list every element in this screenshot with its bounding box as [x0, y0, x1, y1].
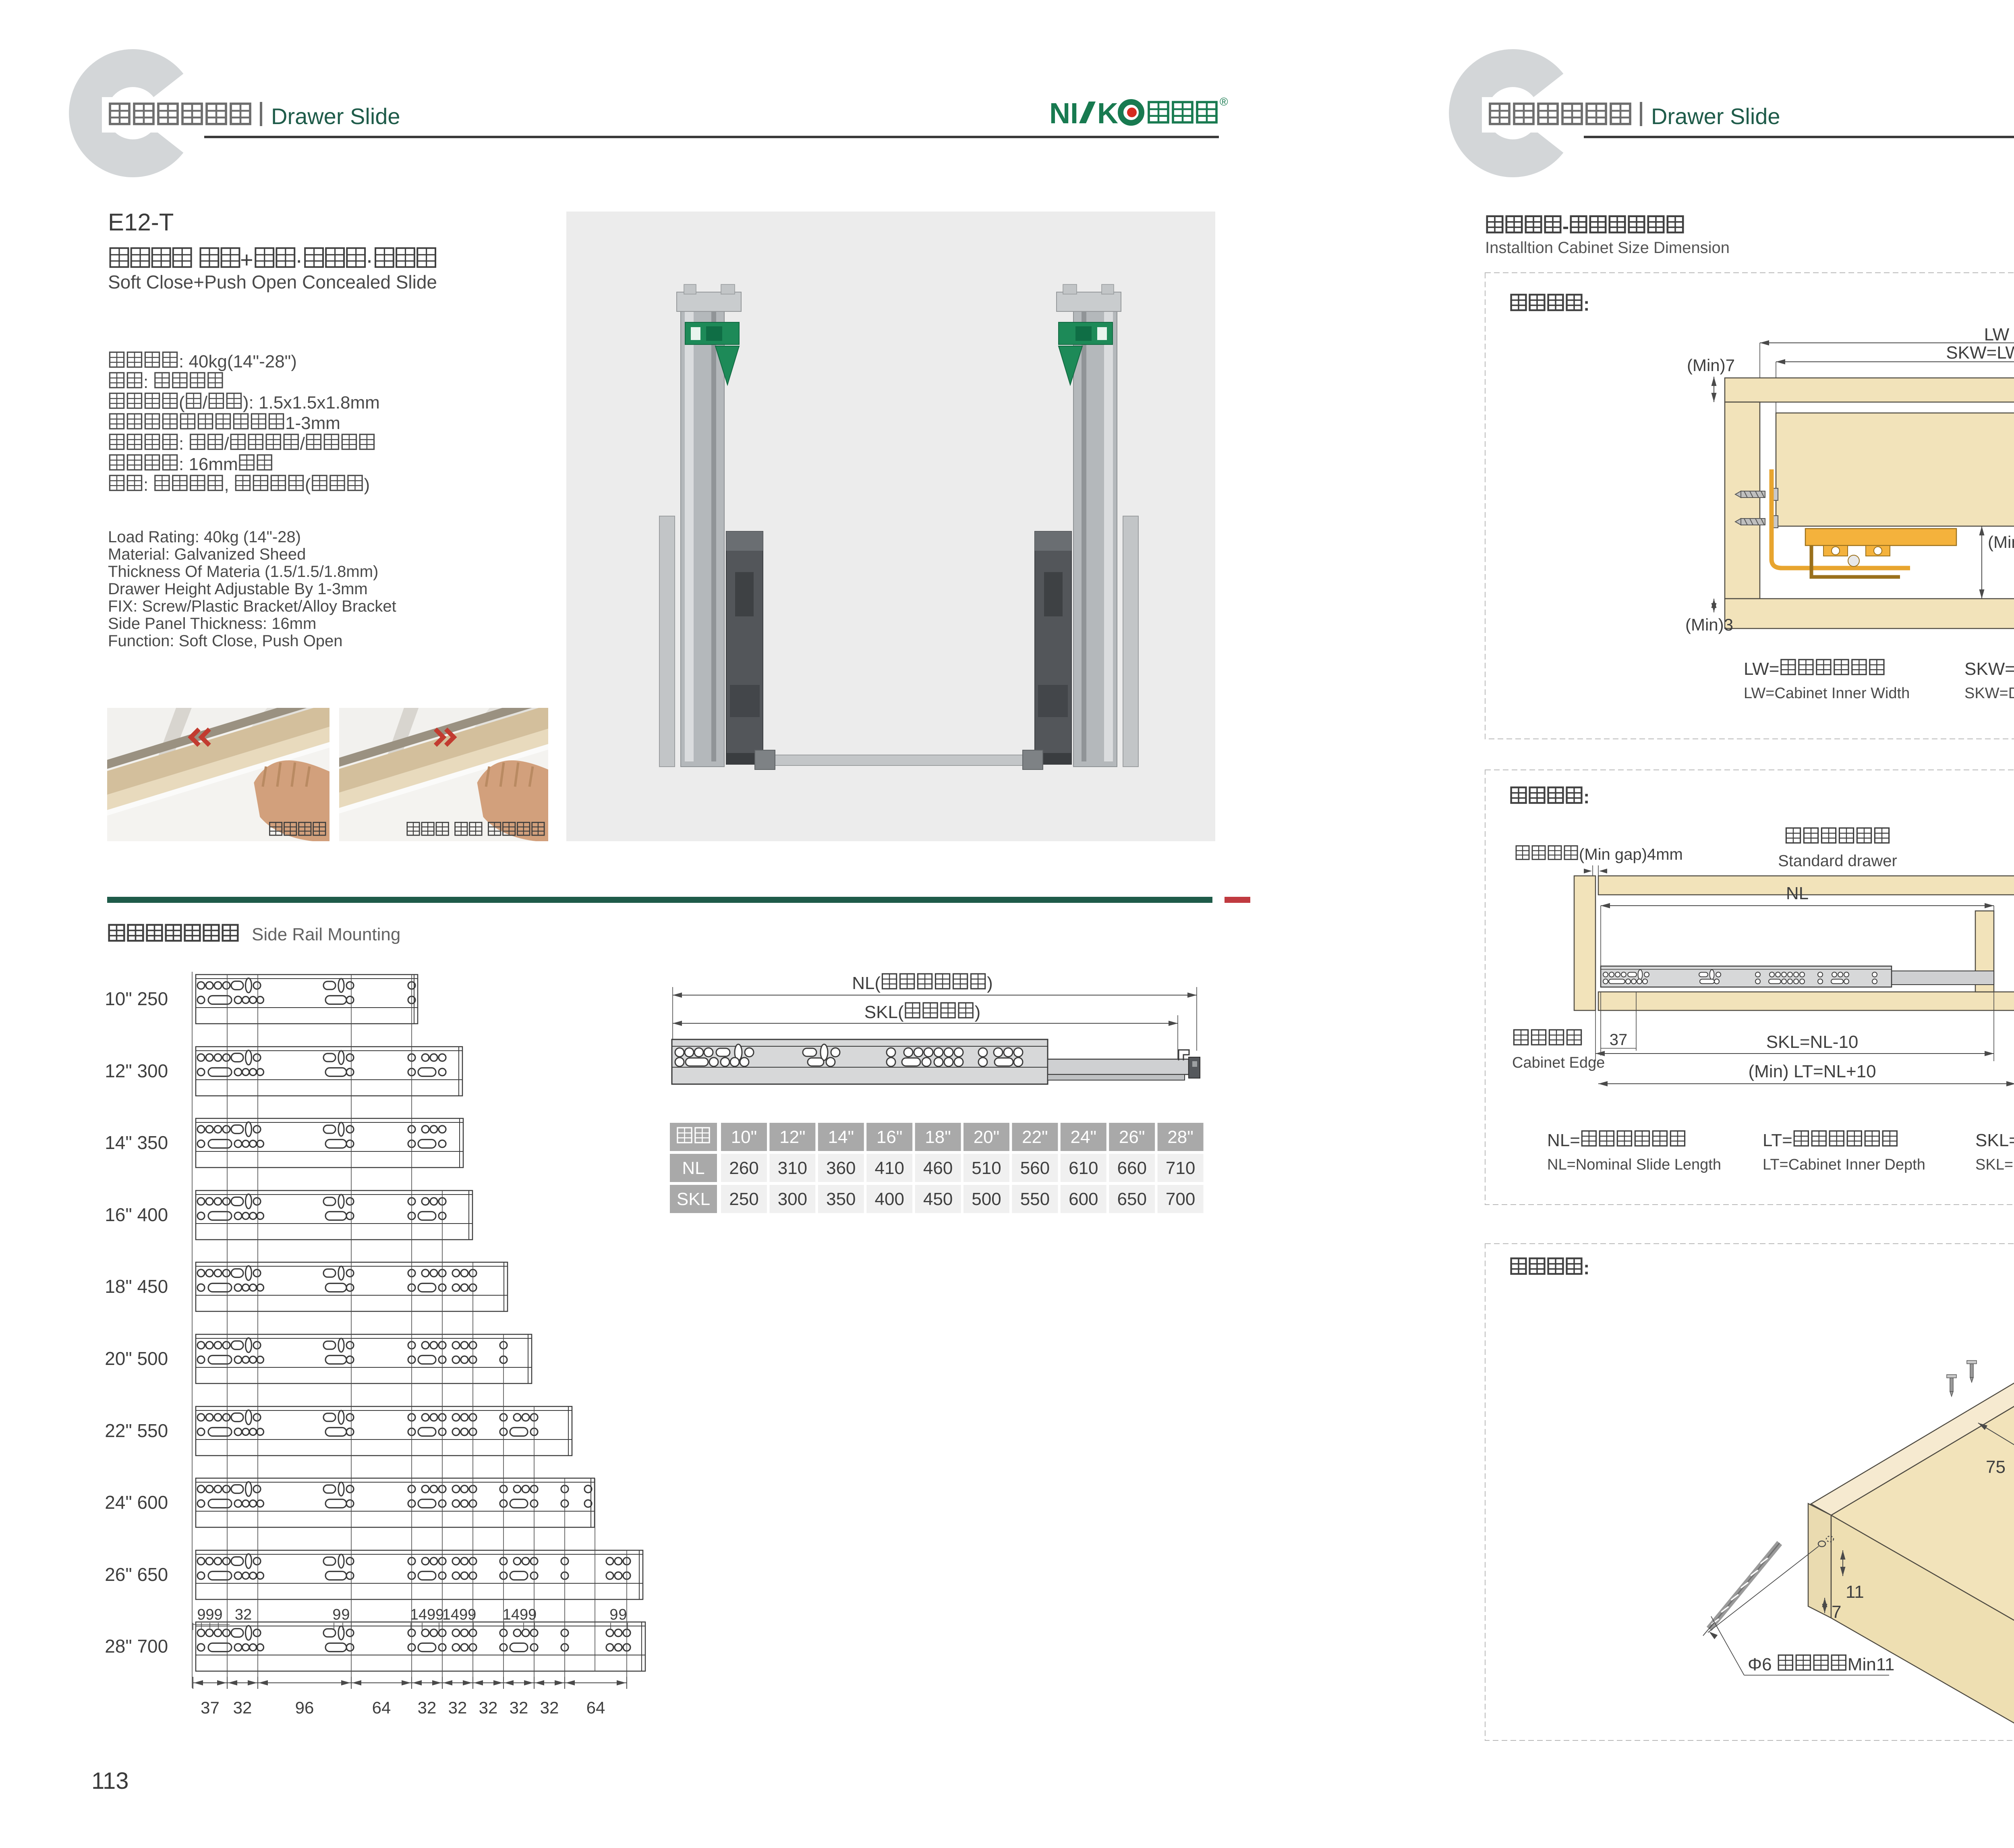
- svg-text:10": 10": [731, 1127, 757, 1147]
- svg-text:300: 300: [778, 1189, 807, 1209]
- svg-text:350: 350: [826, 1189, 856, 1209]
- svg-text:9: 9: [197, 1606, 205, 1623]
- svg-text:9: 9: [214, 1606, 222, 1623]
- svg-text:SKW=: SKW=: [1964, 659, 2014, 679]
- svg-text:SKW=LW-42: SKW=LW-42: [1946, 343, 2014, 363]
- svg-text:(Min)3: (Min)3: [1685, 615, 1733, 634]
- svg-text:9: 9: [332, 1606, 341, 1623]
- svg-text:Drawer Slide: Drawer Slide: [271, 104, 400, 129]
- svg-text:700: 700: [1166, 1189, 1195, 1209]
- svg-text:NL(: NL(: [852, 973, 881, 993]
- svg-text:LW: LW: [1984, 325, 2010, 344]
- svg-text:LW=: LW=: [1744, 659, 1779, 679]
- svg-text:12": 12": [779, 1127, 806, 1147]
- svg-text:NI: NI: [1049, 97, 1078, 130]
- svg-text:-: -: [1562, 216, 1569, 237]
- svg-text:22": 22": [1022, 1127, 1048, 1147]
- svg-text:(Min)27.5: (Min)27.5: [1988, 533, 2014, 552]
- svg-text:9: 9: [341, 1606, 350, 1623]
- svg-text::: :: [143, 372, 148, 392]
- svg-text:7: 7: [1832, 1602, 1841, 1622]
- svg-text:510: 510: [972, 1158, 1001, 1178]
- svg-text:500: 500: [972, 1189, 1001, 1209]
- svg-text:): ): [975, 1002, 981, 1022]
- svg-text:32: 32: [510, 1698, 528, 1717]
- svg-text:37: 37: [201, 1698, 220, 1717]
- svg-text:): ): [987, 973, 993, 993]
- svg-text:(Min gap)4mm: (Min gap)4mm: [1579, 846, 1683, 863]
- svg-text:310: 310: [778, 1158, 807, 1178]
- svg-text:64: 64: [372, 1698, 391, 1717]
- svg-text::: :: [1583, 1257, 1589, 1278]
- svg-text:14" 350: 14" 350: [105, 1132, 168, 1153]
- svg-text:SKL=NL-10: SKL=NL-10: [1766, 1032, 1859, 1052]
- svg-text:20" 500: 20" 500: [105, 1348, 168, 1369]
- svg-text:32: 32: [448, 1698, 467, 1717]
- svg-text:Soft Close+Push Open Concealed: Soft Close+Push Open Concealed Slide: [108, 272, 437, 292]
- svg-text:1499: 1499: [503, 1606, 537, 1623]
- svg-text:Material: Galvanized Sheed: Material: Galvanized Sheed: [108, 545, 306, 563]
- svg-text:SKL(: SKL(: [864, 1002, 904, 1022]
- svg-text:Function: Soft Close, Push Ope: Function: Soft Close, Push Open: [108, 632, 343, 650]
- svg-text:12" 300: 12" 300: [105, 1060, 168, 1081]
- svg-text:Thickness Of Materia (1.5/1.5/: Thickness Of Materia (1.5/1.5/1.8mm): [108, 563, 378, 581]
- svg-text:NL=: NL=: [1547, 1130, 1580, 1150]
- svg-text:(: (: [179, 393, 185, 413]
- svg-text:SKW=Drawer Width: SKW=Drawer Width: [1964, 685, 2014, 702]
- svg-text:32: 32: [540, 1698, 559, 1717]
- svg-text:+: +: [240, 247, 253, 272]
- svg-text:SKL=: SKL=: [1975, 1130, 2014, 1150]
- svg-text:460: 460: [923, 1158, 953, 1178]
- svg-text:28" 700: 28" 700: [105, 1636, 168, 1657]
- svg-text:: 16mm: : 16mm: [179, 454, 238, 474]
- svg-text:610: 610: [1069, 1158, 1098, 1178]
- svg-text:9: 9: [618, 1606, 627, 1623]
- svg-text:113: 113: [91, 1768, 128, 1794]
- svg-text:410: 410: [875, 1158, 904, 1178]
- svg-text:75: 75: [1986, 1457, 2006, 1477]
- svg-text:·: ·: [366, 247, 373, 272]
- svg-text:24" 600: 24" 600: [105, 1492, 168, 1513]
- svg-text:FIX: Screw/Plastic Bracket/All: FIX: Screw/Plastic Bracket/Alloy Bracket: [108, 597, 396, 615]
- svg-text:600: 600: [1069, 1189, 1098, 1209]
- svg-text:26": 26": [1119, 1127, 1145, 1147]
- svg-text:9: 9: [609, 1606, 618, 1623]
- svg-text:1499: 1499: [410, 1606, 444, 1623]
- svg-text:K: K: [1097, 97, 1118, 130]
- svg-text:14": 14": [828, 1127, 854, 1147]
- svg-text:16" 400: 16" 400: [105, 1204, 168, 1225]
- svg-text::: :: [1583, 786, 1589, 807]
- svg-text:/: /: [300, 434, 305, 454]
- svg-text:26" 650: 26" 650: [105, 1564, 168, 1585]
- svg-text:450: 450: [923, 1189, 953, 1209]
- svg-text:LT=Cabinet Inner Depth: LT=Cabinet Inner Depth: [1763, 1156, 1925, 1173]
- svg-text:Side Rail Mounting: Side Rail Mounting: [252, 925, 400, 944]
- svg-text:32: 32: [418, 1698, 437, 1717]
- svg-text:22" 550: 22" 550: [105, 1420, 168, 1441]
- svg-text:Standard drawer: Standard drawer: [1778, 852, 1897, 870]
- svg-text:NL: NL: [682, 1158, 704, 1178]
- svg-text:660: 660: [1117, 1158, 1147, 1178]
- svg-text:560: 560: [1020, 1158, 1050, 1178]
- svg-text:LT=: LT=: [1763, 1130, 1792, 1150]
- svg-text:(Min)7: (Min)7: [1687, 356, 1735, 375]
- svg-text:®: ®: [1220, 95, 1228, 108]
- svg-text:32: 32: [235, 1606, 252, 1623]
- svg-text:NL: NL: [1786, 884, 1809, 903]
- svg-text::: :: [1583, 294, 1589, 315]
- svg-text:24": 24": [1071, 1127, 1097, 1147]
- svg-text:650: 650: [1117, 1189, 1147, 1209]
- svg-text:16": 16": [876, 1127, 903, 1147]
- svg-text:: 40kg(14"-28"): : 40kg(14"-28"): [179, 352, 297, 371]
- svg-text:32: 32: [479, 1698, 498, 1717]
- svg-text:10" 250: 10" 250: [105, 988, 168, 1009]
- svg-text:·: ·: [295, 247, 303, 272]
- svg-text:(: (: [305, 475, 311, 495]
- svg-text:Drawer Slide: Drawer Slide: [1651, 104, 1780, 129]
- svg-text:/: /: [203, 393, 208, 413]
- svg-text:18": 18": [925, 1127, 951, 1147]
- svg-text:9: 9: [205, 1606, 214, 1623]
- svg-text:400: 400: [875, 1189, 904, 1209]
- svg-text:Min11: Min11: [1848, 1655, 1895, 1674]
- svg-text:96: 96: [295, 1698, 314, 1717]
- svg-text:Load Rating: 40kg (14"-28): Load Rating: 40kg (14"-28): [108, 528, 301, 546]
- svg-text:32: 32: [233, 1698, 252, 1717]
- svg-text:Φ6: Φ6: [1748, 1655, 1772, 1674]
- svg-text:550: 550: [1020, 1189, 1050, 1209]
- svg-text:360: 360: [826, 1158, 856, 1178]
- svg-text:SKL: SKL: [677, 1189, 710, 1209]
- svg-text:11: 11: [1846, 1582, 1864, 1602]
- svg-text:): ): [364, 475, 370, 495]
- svg-text::: :: [143, 475, 148, 495]
- svg-text:20": 20": [974, 1127, 1000, 1147]
- svg-text:64: 64: [586, 1698, 605, 1717]
- svg-text:37: 37: [1610, 1031, 1628, 1049]
- svg-text:1499: 1499: [442, 1606, 477, 1623]
- svg-text:/: /: [224, 434, 229, 454]
- svg-text::: :: [179, 434, 184, 454]
- svg-text:,: ,: [224, 475, 229, 495]
- svg-text:260: 260: [729, 1158, 758, 1178]
- svg-text:Installtion Cabinet Size Dimen: Installtion Cabinet Size Dimension: [1485, 239, 1730, 257]
- svg-text:Cabinet Edge: Cabinet Edge: [1512, 1054, 1605, 1071]
- svg-text:250: 250: [729, 1189, 758, 1209]
- svg-text:710: 710: [1166, 1158, 1195, 1178]
- svg-text:SKL=Drawer Length: SKL=Drawer Length: [1975, 1156, 2014, 1173]
- svg-text:): 1.5x1.5x1.8mm: ): 1.5x1.5x1.8mm: [243, 393, 380, 413]
- svg-text:Side Panel Thickness: 16mm: Side Panel Thickness: 16mm: [108, 615, 316, 633]
- svg-text:NL=Nominal Slide Length: NL=Nominal Slide Length: [1547, 1156, 1721, 1173]
- svg-text:(Min) LT=NL+10: (Min) LT=NL+10: [1749, 1062, 1876, 1081]
- svg-text:E12-T: E12-T: [108, 209, 174, 236]
- svg-text:18" 450: 18" 450: [105, 1276, 168, 1297]
- svg-text:1-3mm: 1-3mm: [285, 413, 340, 433]
- svg-text:LW=Cabinet Inner Width: LW=Cabinet Inner Width: [1744, 685, 1910, 702]
- svg-text:28": 28": [1167, 1127, 1193, 1147]
- svg-text:Drawer Height Adjustable By 1-: Drawer Height Adjustable By 1-3mm: [108, 580, 368, 598]
